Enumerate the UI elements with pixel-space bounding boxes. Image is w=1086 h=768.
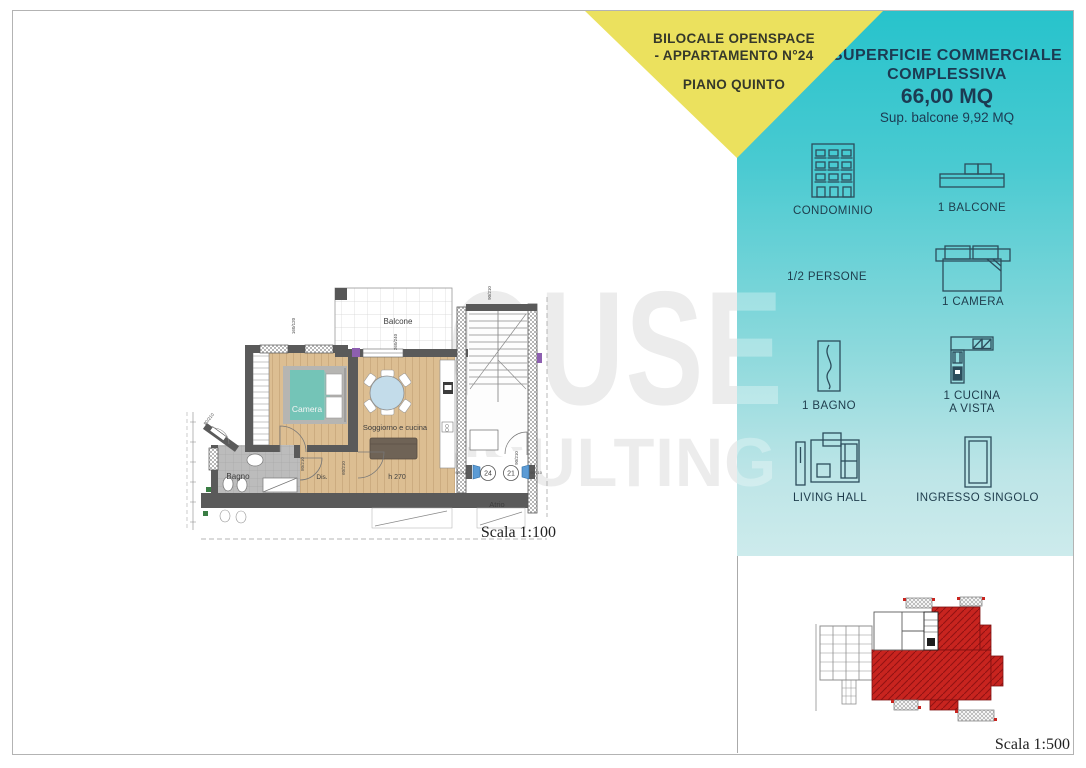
feature-living: LIVING HALL — [770, 432, 890, 505]
feature-condominio: CONDOMINIO — [773, 143, 893, 218]
feature-label: 1 BAGNO — [769, 400, 889, 413]
scale-label-1-100: Scala 1:100 — [416, 524, 556, 542]
feature-label: 1/2 PERSONE — [767, 271, 887, 284]
room-label-dis: Dis. — [316, 474, 327, 481]
room-label-camera: Camera — [292, 404, 323, 414]
bathtub-icon — [817, 340, 841, 392]
floor-plan-drawing: 24 21 Balcone Camera Soggiorno e cucina … — [185, 262, 557, 547]
bed — [283, 366, 347, 424]
pergola-grid — [816, 624, 872, 711]
dim-entry-mid: 90/210 — [514, 451, 519, 465]
dim-sogg-door: 60/210 — [341, 461, 346, 475]
balcone-pillar — [335, 288, 347, 300]
total-area-value: 66,00 MQ — [829, 85, 1065, 109]
siteplan-box-border — [737, 556, 738, 753]
marker-purple-1 — [352, 348, 360, 357]
feature-label: CONDOMINIO — [773, 205, 893, 218]
height-label: h 270 — [388, 474, 406, 481]
camera-window2 — [305, 345, 333, 353]
banner-line1: BILOCALE OPENSPACE — [585, 31, 883, 46]
apartment-number-24: 24 — [484, 471, 492, 478]
sofa — [370, 438, 417, 459]
kitchen-counter — [440, 360, 455, 468]
marker-purple-2 — [537, 353, 542, 363]
feature-ingresso: INGRESSO SINGOLO — [905, 436, 1050, 505]
room-label-bagno: Bagno — [226, 472, 250, 481]
kitchen-icon — [950, 336, 994, 384]
panel-title-2: COMPLESSIVA — [829, 66, 1065, 84]
dim-entry-left: 90/210 — [455, 471, 467, 475]
bagno-window — [209, 448, 218, 470]
balcony-area-value: Sup. balcone 9,92 MQ — [829, 110, 1065, 125]
feature-label: INGRESSO SINGOLO — [905, 492, 1050, 505]
room-label-soggiorno: Soggiorno e cucina — [363, 423, 428, 432]
feature-cucina: 1 CUCINA A VISTA — [912, 336, 1032, 416]
feature-label-2: A VISTA — [912, 403, 1032, 416]
dim-camera-window: 160/120 — [291, 317, 296, 334]
dim-camera-door: 80/210 — [300, 457, 305, 471]
apartment-number-21: 21 — [507, 471, 515, 478]
door-icon — [963, 436, 993, 488]
dim-stair-door: 90/210 — [487, 286, 492, 300]
feature-bagno: 1 BAGNO — [769, 340, 889, 413]
feature-label: 1 BALCONE — [910, 202, 1034, 215]
feature-persone: 1/2 PERSONE — [767, 271, 887, 284]
feature-label: LIVING HALL — [770, 492, 890, 505]
feature-label: 1 CUCINA — [912, 390, 1032, 403]
dim-entry-right: 90/210 — [530, 471, 542, 475]
camera-window — [260, 345, 288, 353]
feature-balcone: 1 BALCONE — [910, 158, 1034, 215]
building-icon — [806, 143, 860, 199]
dim-entry-diag: 80/210 — [203, 412, 216, 426]
panel-title: SUPERFICIE COMMERCIALE — [829, 47, 1065, 65]
dim-balcone: 260/240 — [393, 333, 398, 350]
feature-label: 1 CAMERA — [935, 296, 1011, 309]
balcony-icon — [939, 158, 1005, 190]
bed-icon — [935, 243, 1011, 293]
wardrobe — [253, 352, 269, 445]
scale-label-1-500: Scala 1:500 — [930, 736, 1070, 754]
marker-green-1 — [206, 487, 211, 492]
marker-green-2 — [203, 511, 208, 516]
room-label-balcone: Balcone — [384, 317, 413, 326]
corridor-floor — [300, 445, 358, 493]
site-plan-drawing — [810, 596, 1010, 728]
room-label-atrio: Atrio — [489, 500, 504, 509]
sofa-icon — [795, 432, 865, 486]
unsold-units — [874, 612, 932, 650]
stair-core — [924, 612, 938, 650]
flyer-page: HOUSE CONSULTING — [0, 0, 1086, 768]
feature-camera: 1 CAMERA — [935, 243, 1011, 309]
